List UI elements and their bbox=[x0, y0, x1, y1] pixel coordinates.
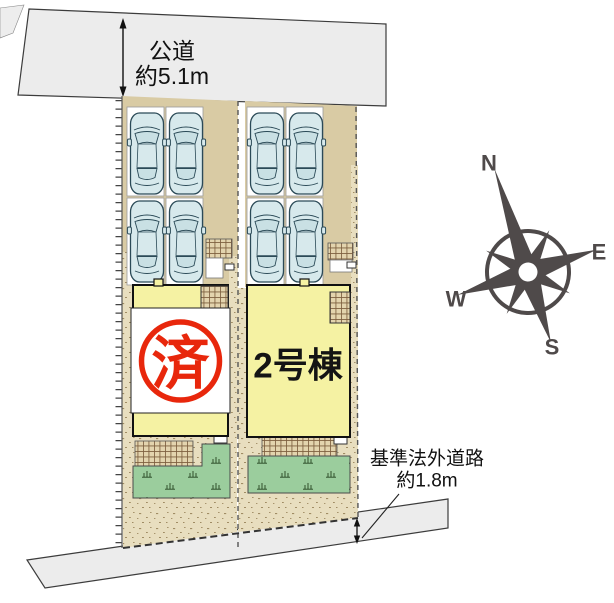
garden-lot2 bbox=[248, 456, 350, 493]
non-certified-road-width-label: 約1.8m bbox=[396, 470, 457, 492]
building-2-label: 2号棟 bbox=[253, 347, 343, 386]
car-icon bbox=[166, 201, 205, 282]
car-icon bbox=[127, 201, 166, 282]
compass-label-north: N bbox=[481, 151, 497, 176]
compass-north-needle bbox=[486, 166, 537, 275]
compass-label-west: W bbox=[446, 287, 467, 312]
public-road-width-label: 約5.1m bbox=[135, 63, 209, 89]
public-road-surface bbox=[18, 9, 386, 106]
car-icon bbox=[247, 201, 286, 282]
compass-label-south: S bbox=[545, 335, 560, 360]
public-road: 公道 約5.1m bbox=[0, 5, 386, 106]
sold-stamp-text: 済 bbox=[151, 332, 210, 397]
sold-stamp: 済 bbox=[131, 308, 230, 413]
car-icon bbox=[286, 113, 325, 194]
car-icon bbox=[127, 113, 166, 194]
terrace-lot2 bbox=[262, 437, 337, 457]
car-icon bbox=[247, 113, 286, 194]
car-icon bbox=[166, 113, 205, 194]
compass-rose-icon: N E W S bbox=[424, 146, 614, 365]
site-plan: 公道 約5.1m bbox=[0, 0, 614, 603]
non-certified-road-label: 基準法外道路 bbox=[370, 448, 484, 470]
road-corner-fragment bbox=[0, 5, 24, 38]
building-2-balcony bbox=[330, 292, 350, 323]
compass-label-east: E bbox=[592, 240, 607, 265]
terrace-lot1 bbox=[135, 441, 193, 466]
public-road-label: 公道 bbox=[149, 38, 195, 64]
car-icon bbox=[286, 201, 325, 282]
